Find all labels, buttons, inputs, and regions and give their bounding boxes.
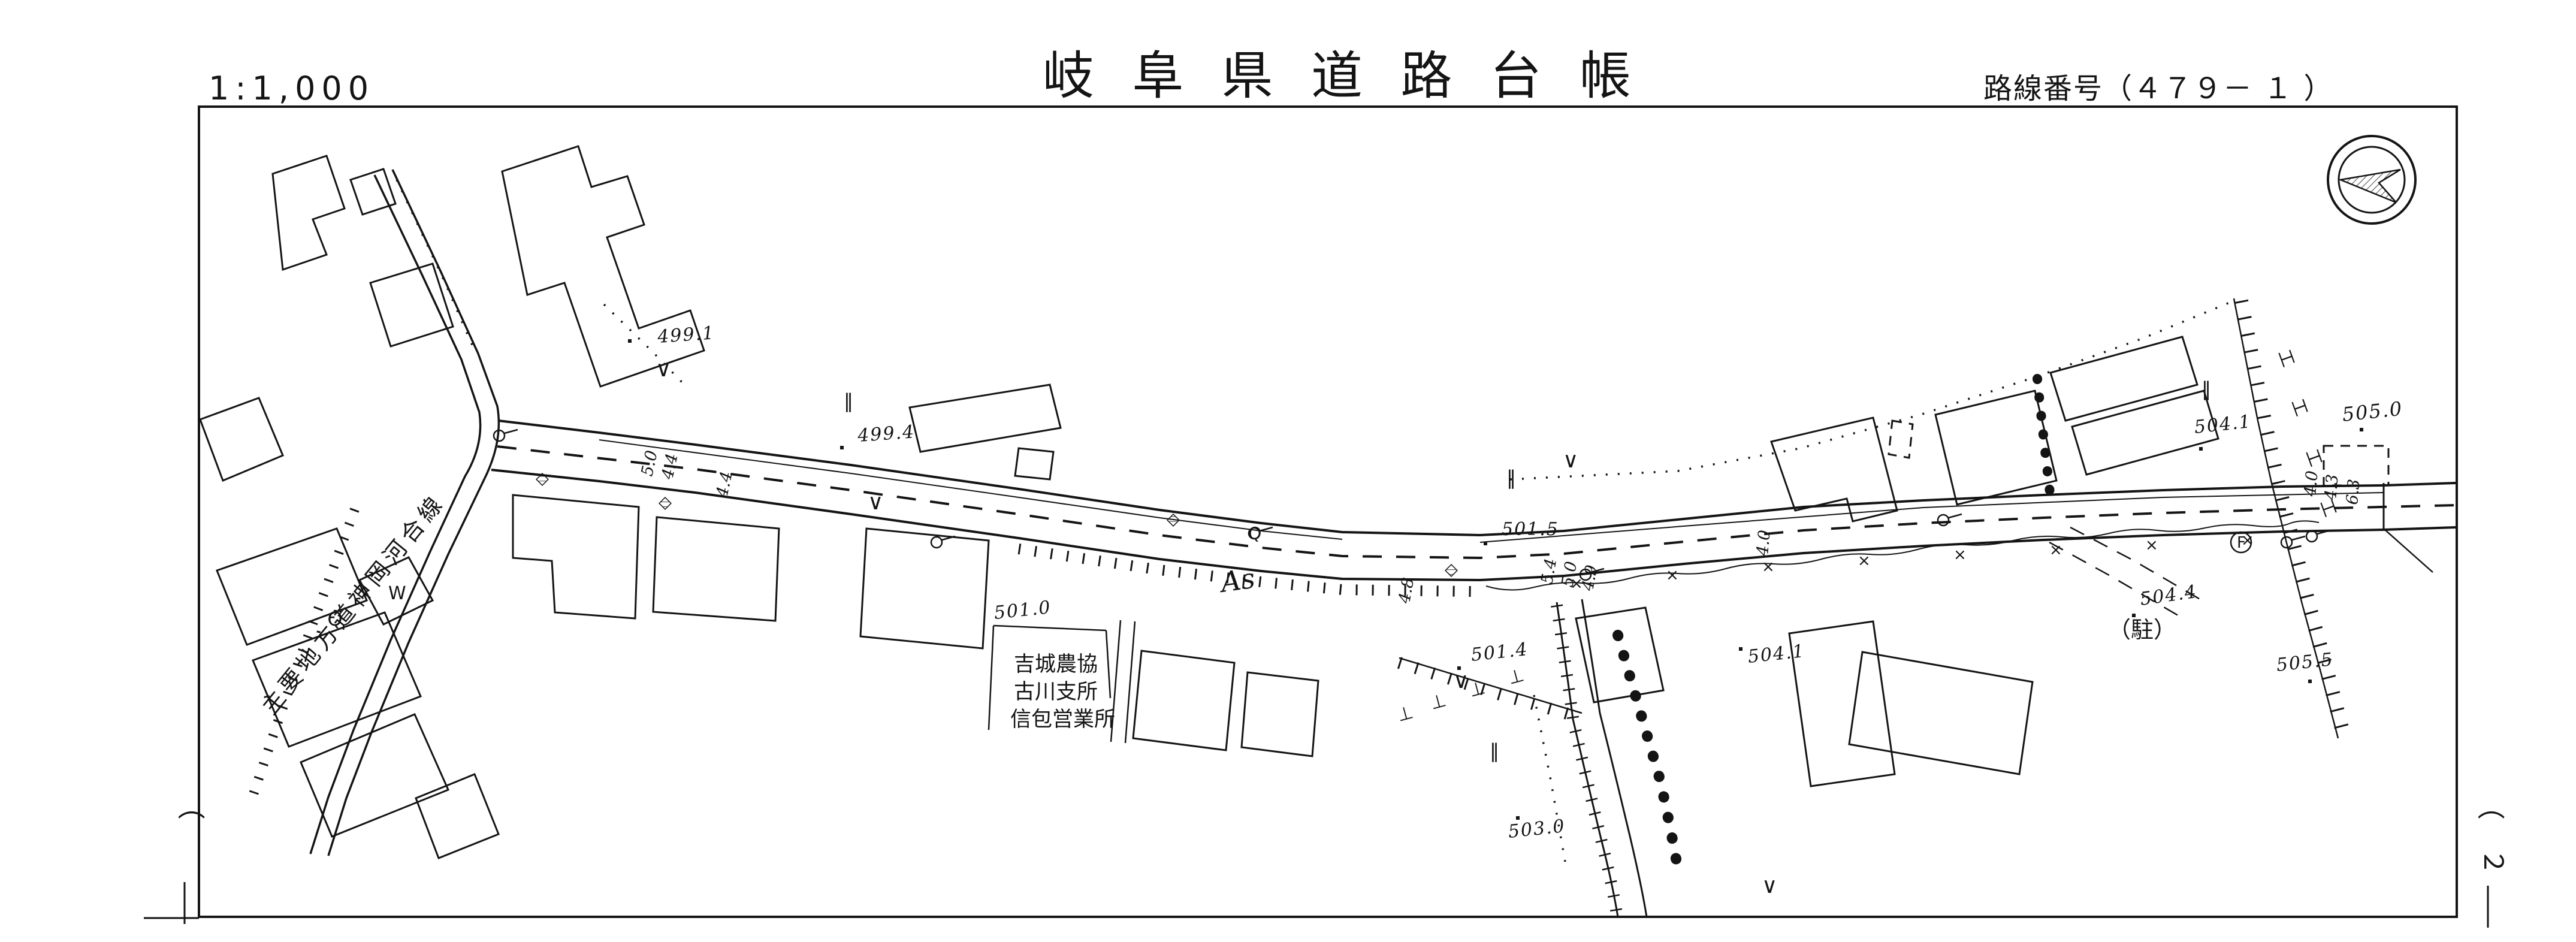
map-label: Q (326, 606, 344, 631)
map-label: × (1570, 575, 1583, 593)
left-margin-paren: （ (174, 792, 207, 820)
map-label: 工 (2302, 446, 2326, 469)
map-label: 吉城農協 (1014, 653, 1098, 677)
map-frame (199, 107, 2457, 917)
map-label: ‖ (1490, 739, 1499, 762)
map-label: 4.0 (2301, 470, 2322, 497)
map-label: ∨ (868, 490, 883, 515)
map-label: Q (1247, 523, 1263, 544)
map-label: As (1216, 562, 1257, 599)
map-label: × (1666, 566, 1679, 584)
embankments (1399, 298, 2344, 738)
map-label: 501.4 (1470, 639, 1529, 666)
street-lights (536, 473, 1457, 576)
map-label: 5.4 (1538, 557, 1560, 586)
map-label: × (1762, 558, 1775, 576)
map-label: × (1858, 552, 1871, 570)
map-label: 505.5 (2275, 649, 2335, 676)
map-label: ∨ (1563, 448, 1578, 473)
map-label: 501.5 (1502, 519, 1559, 540)
map-label: ∨ (656, 357, 671, 382)
route-number-label: 路線番号（４７９－ １ ） (1983, 72, 2334, 105)
map-label: 505.0 (2341, 397, 2404, 426)
map-label: 504.1 (1747, 641, 1806, 668)
map-label: （駐） (2108, 617, 2176, 643)
north-arrow-icon (2328, 136, 2415, 224)
map-label: 4.0 (1753, 529, 1774, 557)
map-label: 499.1 (656, 322, 715, 348)
map-label: 4.4 (712, 470, 736, 499)
main-road (491, 421, 2456, 591)
map-label: ⊥ (1467, 677, 1487, 702)
map-label: 古川支所 (1014, 680, 1098, 704)
map-label: × (2049, 541, 2062, 559)
map-label: 504.4 (2139, 581, 2198, 610)
map-label: 4.3 (2321, 473, 2342, 501)
scale-label: 1:1,000 (209, 70, 375, 107)
map-labels-layer: 499.1499.4501.5501.0501.4503.0504.1504.1… (256, 322, 2404, 898)
map-label: × (2145, 536, 2158, 554)
side-road-kamioka-kawai (253, 170, 499, 856)
parcel-lines (604, 301, 2433, 862)
map-label: 5.0 (638, 449, 662, 478)
map-label: ‖ (2201, 378, 2211, 400)
map-label: ⊥ (1506, 665, 1526, 689)
map-label: 工 (2274, 347, 2299, 370)
map-label: 4.4 (658, 452, 681, 481)
map-label: 主要地方道神岡河合線 (256, 488, 451, 719)
map-label: 501.0 (993, 597, 1052, 624)
map-label: 工 (2287, 396, 2312, 419)
map-label: × (1953, 546, 1967, 564)
map-label: 4.8 (1395, 576, 1418, 606)
map-label: ‖ (1506, 466, 1516, 489)
right-margin-paren: （ (2474, 792, 2506, 820)
page-title: 岐 阜 県 道 路 台 帳 (1043, 46, 1642, 106)
road-ledger-sheet: 1:1,000 岐 阜 県 道 路 台 帳 路線番号（４７９－ １ ） （ （ … (0, 0, 2576, 942)
right-margin-page-number: ２ (2478, 849, 2508, 875)
map-label: 504.1 (2193, 411, 2252, 438)
map-label: × (2241, 532, 2254, 549)
map-label: 6.3 (2343, 478, 2364, 505)
map-label: ⊥ (1395, 702, 1415, 726)
map-label: 信包営業所 (1010, 708, 1115, 732)
map-label: ⊥ (1428, 690, 1448, 714)
map-label: W (388, 583, 406, 604)
map-label: 499.4 (856, 421, 916, 446)
map-label: ∨ (1762, 874, 1777, 898)
map-label: ‖ (844, 390, 853, 412)
